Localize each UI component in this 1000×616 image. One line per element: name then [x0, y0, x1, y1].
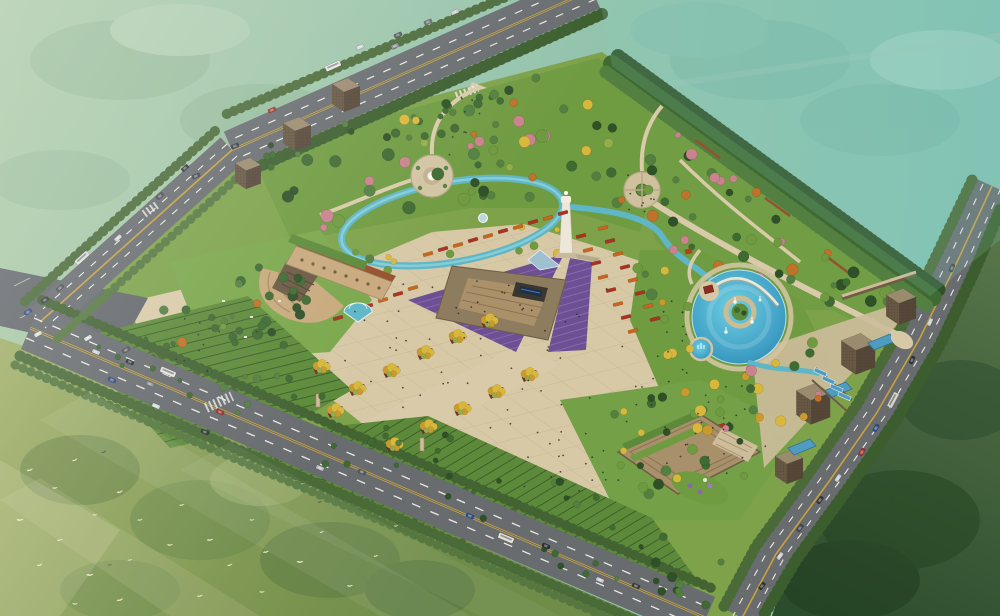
- rendering-stage: [0, 0, 1000, 616]
- atmosphere-overlays: [0, 0, 1000, 616]
- park-aerial-rendering: [0, 0, 1000, 616]
